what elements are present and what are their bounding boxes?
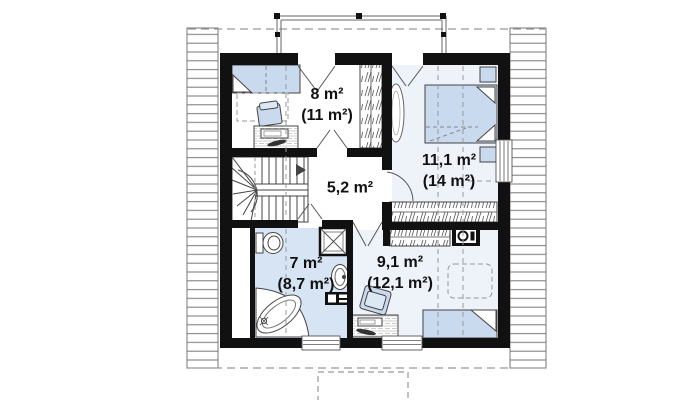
bed-icon bbox=[232, 65, 300, 93]
floor-plan-drawing bbox=[0, 0, 700, 400]
nightstand-icon bbox=[480, 147, 496, 162]
room-label-bathroom: 7 m² (8,7 m²) bbox=[278, 253, 335, 295]
window-icon bbox=[302, 336, 340, 350]
shower-icon bbox=[320, 228, 347, 255]
room-label-hall: 5,2 m² bbox=[327, 178, 373, 199]
room-area: 7 m² bbox=[278, 253, 335, 274]
room-area-note: (14 m²) bbox=[422, 171, 476, 192]
porch-outline bbox=[318, 372, 408, 400]
bed-icon bbox=[423, 310, 497, 338]
room-area-note: (11 m²) bbox=[301, 105, 353, 126]
nightstand-icon bbox=[480, 67, 496, 82]
room-label-bedroom-bottom: 9,1 m² (12,1 m²) bbox=[367, 252, 433, 294]
room-area: 9,1 m² bbox=[367, 252, 433, 273]
room-area-note: (8,7 m²) bbox=[278, 274, 335, 295]
wardrobe-icon bbox=[360, 63, 382, 148]
stairs bbox=[232, 157, 308, 222]
wardrobe-icon bbox=[390, 202, 497, 222]
toilet-icon bbox=[256, 233, 283, 254]
desk-icon bbox=[254, 126, 298, 149]
wardrobe-icon bbox=[390, 228, 450, 246]
room-area: 11,1 m² bbox=[422, 150, 476, 171]
desk-icon bbox=[352, 315, 398, 337]
room-area-note: (12,1 m²) bbox=[367, 273, 433, 294]
window-icon bbox=[382, 336, 422, 350]
double-bed-icon bbox=[425, 85, 497, 143]
room-area: 8 m² bbox=[301, 84, 353, 105]
room-label-bedroom-right: 11,1 m² (14 m²) bbox=[422, 150, 476, 192]
chair-icon bbox=[256, 100, 282, 126]
window-icon bbox=[496, 140, 512, 182]
room-area: 5,2 m² bbox=[327, 178, 373, 199]
room-label-bedroom-top-left: 8 m² (11 m²) bbox=[301, 84, 353, 126]
dormer bbox=[274, 13, 446, 53]
floor-plan: 8 m² (11 m²) 11,1 m² (14 m²) 5,2 m² 7 m²… bbox=[0, 0, 700, 400]
